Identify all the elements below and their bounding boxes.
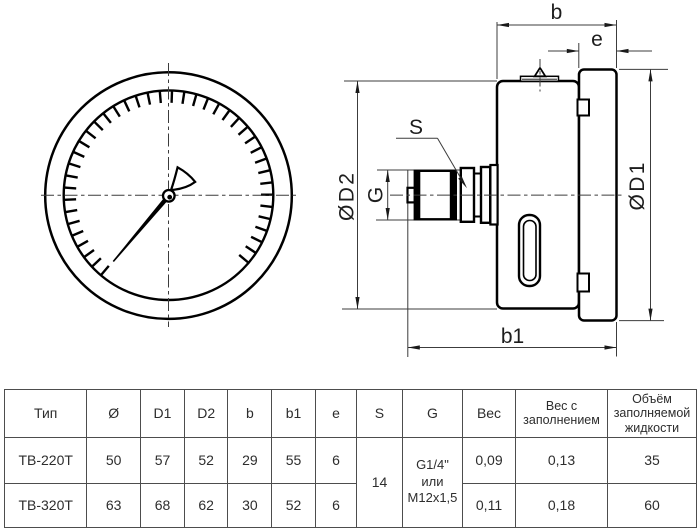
svg-text:ØD2: ØD2 [336, 173, 359, 221]
svg-text:e: e [591, 28, 603, 51]
svg-text:S: S [409, 116, 423, 139]
svg-text:ØD1: ØD1 [626, 163, 649, 211]
svg-text:b1: b1 [501, 325, 524, 348]
svg-text:G: G [365, 187, 388, 203]
svg-text:b: b [551, 1, 563, 24]
